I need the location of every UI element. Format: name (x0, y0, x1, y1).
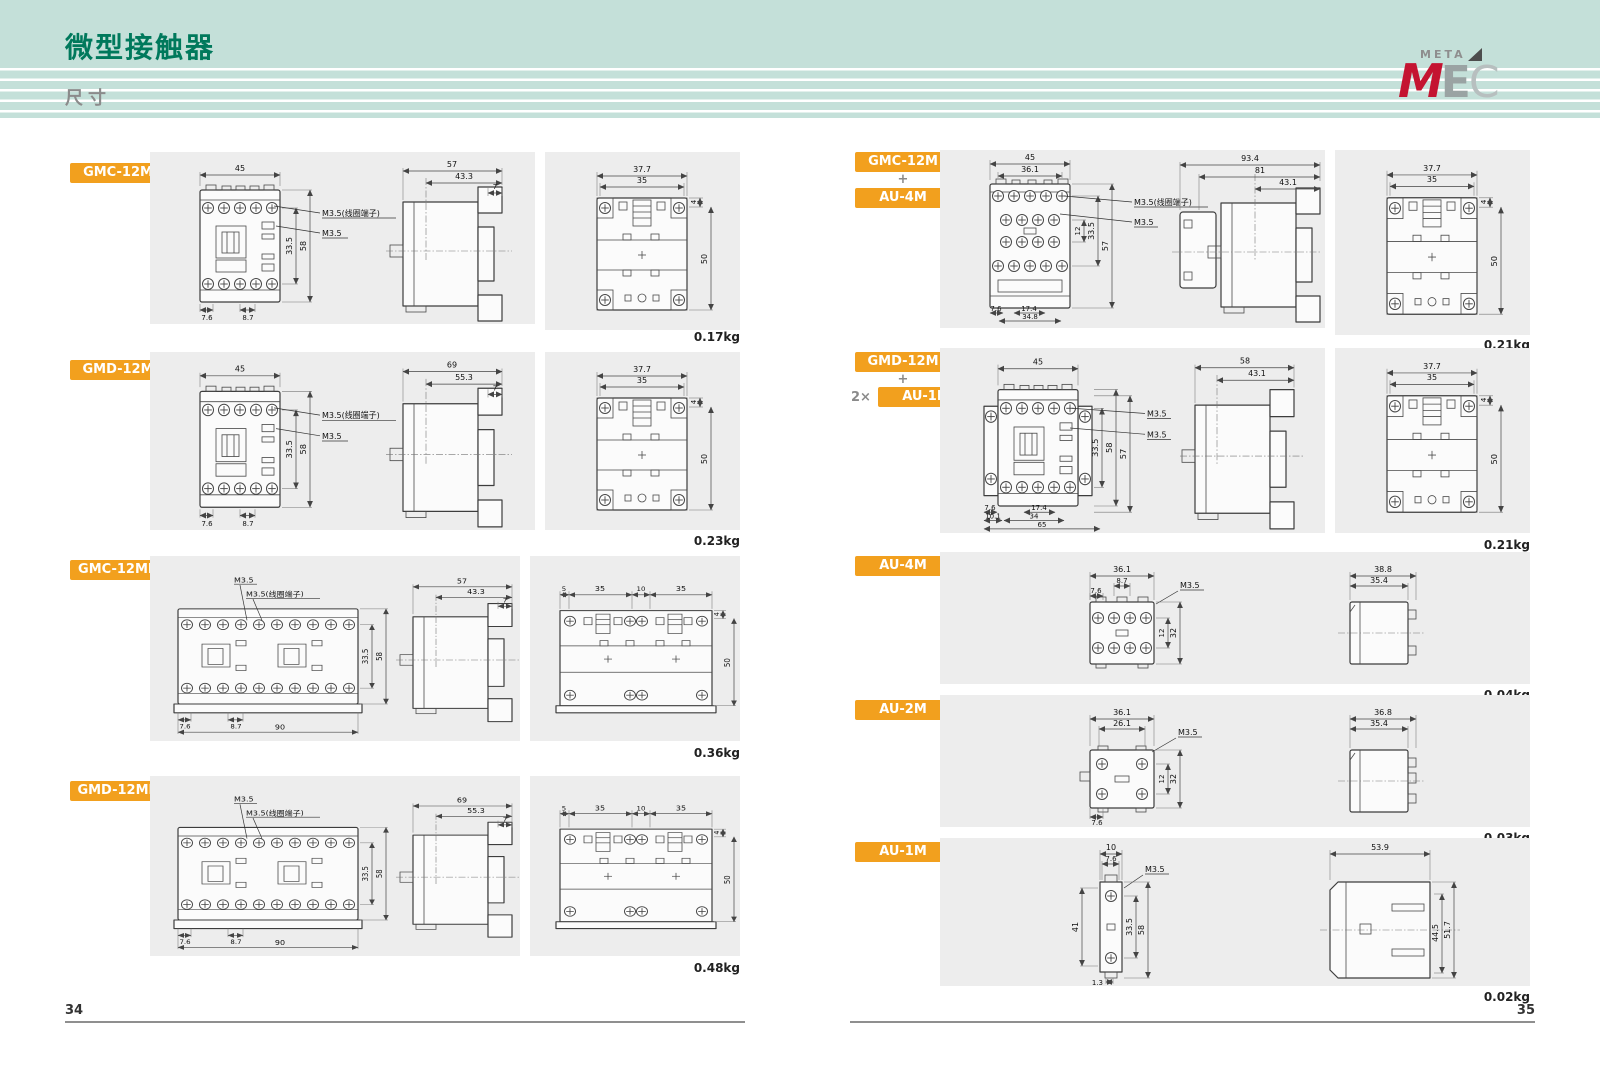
badge-gmc-12m: GMC-12M (855, 152, 951, 172)
front-view: 36.1 8.7 7.6 M3.5 12 32 (1090, 565, 1204, 668)
dim-label: 10 (637, 805, 646, 812)
dim-label: 41 (1071, 922, 1080, 932)
coil-terminal-label: M3.5(线圈端子) (1134, 197, 1192, 207)
page-number-left: 34 (65, 1003, 83, 1018)
metamec-logo: META MEC (1398, 48, 1538, 115)
dim-label: 58 (374, 869, 384, 878)
coil-terminal-label: M3.5(线圈端子) (322, 208, 380, 218)
front-view: M3.5 M3.5(线圈端子) 33.5 58 7.6 8.7 90 (174, 576, 388, 734)
side-view: 53.9 44.5 51.7 (1320, 843, 1460, 978)
terminal-label: M3.5 (234, 576, 254, 584)
side-view: 57 43.3 7 (396, 577, 520, 722)
header-stripes (0, 60, 1600, 118)
gmd-12mr-front-side-svg: M3.5 M3.5(线圈端子) 33.5 58 7.6 8.7 90 69 55… (150, 776, 520, 956)
front-view: 45 33.5 58 7.6 8.7 M3.5(线圈端子) M3.5 (200, 164, 396, 322)
footer-rule-left (65, 1021, 745, 1023)
front-view: 10 7.6 M3.5 41 33.5 58 1.3 (1071, 843, 1169, 986)
terminal-label: M3.5 (1134, 218, 1154, 227)
dim-label: 33.5 (1125, 918, 1134, 936)
dim-label: 8.7 (230, 938, 241, 945)
dim-label: 32 (1169, 774, 1178, 784)
dim-label: 36.1 (1113, 565, 1131, 574)
gmd-12m-front-side-svg: 45 33.5 58 7.6 8.7 M3.5(线圈端子) M3.5 69 55… (150, 352, 535, 530)
dim-label: 8.7 (242, 519, 253, 528)
badge-au-4m: AU-4M (855, 556, 951, 576)
dim-label: 50 (700, 254, 709, 264)
dim-label: 58 (1240, 355, 1250, 365)
gmc-12mr-bottom-svg: 5 35 10 35 4 50 (530, 556, 740, 741)
au-1m-svg: 10 7.6 M3.5 41 33.5 58 1.3 53.9 44.5 (940, 838, 1530, 986)
dim-label: 7.6 (1090, 587, 1102, 595)
gmc-12mr-bottom-drawing: 5 35 10 35 4 50 (530, 556, 740, 741)
dim-label: 33.5 (284, 440, 294, 458)
page-title: 微型接触器 (65, 26, 215, 66)
gmc-12m-front-side-svg: 45 33.5 58 7.6 8.7 M3.5(线圈端子) M3.5 57 43… (150, 152, 535, 324)
dim-label: 12 (1158, 629, 1166, 638)
bottom-view: 5 35 10 35 4 50 (556, 585, 736, 713)
dim-label: 57 (1101, 241, 1110, 251)
bottom-view: 5 35 10 35 4 50 (556, 804, 736, 929)
dim-label: 32 (1169, 628, 1178, 638)
dim-label: 7.6 (179, 938, 190, 945)
dim-label: 90 (275, 723, 285, 731)
dim-label: 58 (1104, 443, 1114, 454)
dim-label: 35 (1427, 174, 1437, 184)
dim-label: 65 (1038, 520, 1047, 529)
badge-au-4m: AU-4M (855, 188, 951, 208)
dim-label: 36.1 (1021, 165, 1039, 174)
dim-label: 7 (503, 597, 507, 604)
plus-sign: + (855, 172, 951, 187)
plus-sign: + (855, 372, 951, 387)
dim-label: 43.3 (455, 172, 473, 181)
dim-label: 50 (722, 875, 732, 884)
front-view: M3.5 M3.5(线圈端子) 33.5 58 7.6 8.7 90 (174, 795, 388, 949)
dim-label: 50 (1489, 256, 1499, 267)
gmd-12mr-bottom-svg: 5 35 10 35 4 50 (530, 776, 740, 956)
gmc-12mr-front-side-svg: M3.5 M3.5(线圈端子) 33.5 58 7.6 8.7 90 57 43… (150, 556, 520, 741)
gmd-12mr-bottom-drawing: 5 35 10 35 4 50 (530, 776, 740, 956)
dim-label: 35.4 (1370, 719, 1388, 728)
dim-label: 1.3 (1092, 979, 1103, 986)
side-view: 38.8 35.4 (1338, 565, 1424, 664)
gmd-12m-au1m-front-side-drawing: 45 33.5 58 57 M3.5 M3.5 7.6 17.4 10.1 34… (940, 348, 1325, 533)
dim-label: 5 (562, 805, 566, 812)
terminal-label: M3.5 (322, 431, 342, 441)
dim-label: 58 (1137, 925, 1146, 935)
dim-label: 33.5 (361, 648, 371, 664)
dim-label: 53.9 (1371, 843, 1389, 852)
dim-label: 69 (457, 796, 467, 804)
dim-label: 50 (1489, 454, 1499, 465)
dim-label: 36.1 (1113, 708, 1131, 717)
gmd-12m-bottom-drawing: 37.7 35 4 50 (545, 352, 740, 530)
dim-label: 10 (637, 586, 646, 593)
weight-label: 0.36kg (540, 746, 740, 760)
dim-label: 37.7 (633, 365, 651, 374)
dim-label: 26.1 (1113, 719, 1131, 728)
weight-label: 0.23kg (540, 534, 740, 548)
logo-c: C (1469, 57, 1500, 108)
gmd-12m-au1m-bottom-svg: 37.7 35 4 50 (1335, 348, 1530, 533)
gmd-12m-au1m-bottom-drawing: 37.7 35 4 50 (1335, 348, 1530, 533)
badge-gmd-12m: GMD-12M (855, 352, 951, 372)
dim-label: 38.8 (1374, 565, 1392, 574)
terminal-label: M3.5 (1147, 429, 1167, 439)
gmd-12m-bottom-svg: 37.7 35 4 50 (545, 352, 740, 530)
dim-label: 4 (713, 831, 722, 835)
dim-label: 45 (235, 164, 245, 173)
dim-label: 93.4 (1241, 154, 1259, 163)
dim-label: 51.7 (1443, 921, 1452, 939)
badge-au-2m: AU-2M (855, 700, 951, 720)
dim-label: 12 (1074, 227, 1082, 236)
gmd-12m-au1m-front-side-svg: 45 33.5 58 57 M3.5 M3.5 7.6 17.4 10.1 34… (940, 348, 1325, 533)
au-4m-drawing: 36.1 8.7 7.6 M3.5 12 32 38.8 35.4 (940, 552, 1530, 684)
dim-label: 50 (700, 454, 709, 464)
au-4m-svg: 36.1 8.7 7.6 M3.5 12 32 38.8 35.4 (940, 552, 1530, 684)
dim-label: 57 (457, 577, 467, 585)
dim-label: 7 (493, 383, 497, 392)
dim-label: 7.6 (179, 723, 190, 730)
coil-terminal-label: M3.5(线圈端子) (246, 589, 304, 598)
au-1m-drawing: 10 7.6 M3.5 41 33.5 58 1.3 53.9 44.5 (940, 838, 1530, 986)
dim-label: 7 (493, 183, 497, 191)
dim-label: 35 (676, 585, 686, 593)
dim-label: 12 (1158, 775, 1166, 784)
gmd-12mr-front-side-drawing: M3.5 M3.5(线圈端子) 33.5 58 7.6 8.7 90 69 55… (150, 776, 520, 956)
dim-label: 7.6 (990, 305, 1002, 313)
dim-label: 35 (1427, 372, 1437, 382)
dim-label: 4 (690, 399, 698, 404)
dim-label: 43.1 (1279, 178, 1297, 187)
dim-label: 7.6 (201, 314, 213, 322)
bottom-view: 37.7 35 4 50 (1387, 163, 1503, 315)
side-view: 69 55.3 7 (386, 359, 512, 527)
terminal-label: M3.5 (1178, 728, 1198, 737)
dim-label: 35 (637, 176, 647, 185)
front-view: 45 36.1 12 33.5 57 M3.5(线圈端子) M3.5 7.6 1… (990, 153, 1208, 321)
page-subtitle: 尺寸 (65, 84, 111, 110)
weight-label: 0.17kg (540, 330, 740, 344)
terminal-label: M3.5 (234, 795, 254, 803)
dim-label: 50 (723, 658, 733, 667)
footer-rule-right (850, 1021, 1535, 1023)
dim-label: 35 (637, 376, 647, 385)
gmd-12m-front-side-drawing: 45 33.5 58 7.6 8.7 M3.5(线圈端子) M3.5 69 55… (150, 352, 535, 530)
dim-label: 7.6 (201, 519, 213, 528)
dim-label: 81 (1255, 166, 1265, 175)
gmc-12m-front-side-drawing: 45 33.5 58 7.6 8.7 M3.5(线圈端子) M3.5 57 43… (150, 152, 535, 324)
dim-label: 58 (298, 444, 308, 455)
dim-label: 7.6 (1105, 855, 1117, 863)
bottom-view: 37.7 35 4 50 (597, 365, 713, 510)
weight-label: 0.02kg (1330, 990, 1530, 1004)
catalog-page: 微型接触器 尺寸 META MEC GMC-12M 45 33.5 58 7.6… (0, 0, 1600, 1085)
dim-label: 35 (595, 804, 605, 812)
gmc-12m-au4m-front-side-svg: 45 36.1 12 33.5 57 M3.5(线圈端子) M3.5 7.6 1… (940, 150, 1325, 328)
dim-label: 33.5 (1087, 222, 1096, 240)
dim-label: 44.5 (1431, 924, 1440, 942)
terminal-label: M3.5 (1147, 408, 1167, 418)
dim-label: 4 (1479, 397, 1488, 402)
dim-label: 34.8 (1022, 313, 1038, 321)
dim-label: 5 (562, 586, 566, 593)
dim-label: 69 (447, 359, 457, 369)
front-view: 45 33.5 58 7.6 8.7 M3.5(线圈端子) M3.5 (200, 364, 396, 528)
dim-label: 57 (447, 160, 457, 169)
dim-label: 35 (595, 585, 605, 593)
dim-label: 58 (299, 241, 308, 251)
dim-label: 45 (1033, 356, 1043, 366)
dim-label: 36.8 (1374, 708, 1392, 717)
dim-label: 37.7 (1423, 163, 1441, 173)
bottom-view: 37.7 35 4 50 (597, 165, 713, 310)
gmc-12m-au4m-bottom-drawing: 37.7 35 4 50 (1335, 150, 1530, 335)
dim-label: 57 (1118, 449, 1128, 460)
coil-terminal-label: M3.5(线圈端子) (322, 410, 380, 420)
side-view: 57 43.3 7 (386, 160, 512, 321)
au-2m-svg: 36.1 26.1 M3.5 12 32 7.6 36.8 35.4 (940, 695, 1530, 827)
dim-label: 10.1 (985, 511, 1001, 520)
terminal-label: M3.5 (1180, 581, 1200, 590)
gmc-12m-bottom-svg: 37.7 35 4 50 (545, 152, 740, 330)
terminal-label: M3.5 (1145, 865, 1165, 874)
bottom-view: 37.7 35 4 50 (1387, 361, 1503, 513)
terminal-label: M3.5 (322, 229, 342, 238)
dim-label: 37.7 (1423, 361, 1441, 371)
side-view: 36.8 35.4 (1338, 708, 1424, 812)
dim-label: 55.3 (467, 806, 485, 814)
dim-label: 43.1 (1248, 368, 1266, 378)
front-view: 36.1 26.1 M3.5 12 32 7.6 (1080, 708, 1202, 827)
header-band: 微型接触器 尺寸 META MEC (0, 0, 1600, 118)
logo-m: M (1398, 54, 1441, 108)
gmc-12m-au4m-front-side-drawing: 45 36.1 12 33.5 57 M3.5(线圈端子) M3.5 7.6 1… (940, 150, 1325, 328)
front-view: 45 33.5 58 57 M3.5 M3.5 7.6 17.4 10.1 34… (984, 356, 1171, 528)
dim-label: 55.3 (455, 372, 473, 382)
dim-label: 45 (235, 364, 245, 374)
dim-label: 45 (1025, 153, 1035, 162)
dim-label: 10 (1106, 843, 1116, 852)
dim-label: 7.6 (1091, 819, 1103, 827)
weight-label: 0.48kg (540, 961, 740, 975)
dim-label: 7 (503, 816, 507, 823)
dim-label: 43.3 (467, 587, 485, 595)
page-number-right: 35 (1335, 1003, 1535, 1018)
dim-label: 33.5 (360, 866, 370, 881)
dim-label: 4 (713, 612, 721, 616)
coil-terminal-label: M3.5(线圈端子) (246, 808, 304, 817)
dim-label: 35.4 (1370, 576, 1388, 585)
side-view: 93.4 81 43.1 (1172, 154, 1322, 322)
gmc-12m-au4m-bottom-svg: 37.7 35 4 50 (1335, 150, 1530, 335)
dim-label: 4 (690, 199, 698, 204)
dim-label: 33.5 (1090, 439, 1100, 457)
dim-label: 4 (1479, 199, 1488, 204)
dim-label: 8.7 (230, 723, 241, 730)
weight-label: 0.21kg (1330, 538, 1530, 552)
dim-label: 35 (676, 804, 686, 812)
gmc-12m-bottom-drawing: 37.7 35 4 50 (545, 152, 740, 330)
dim-label: 8.7 (1116, 577, 1127, 585)
logo-e: E (1441, 57, 1469, 108)
dim-label: 90 (275, 938, 285, 946)
au-2m-drawing: 36.1 26.1 M3.5 12 32 7.6 36.8 35.4 (940, 695, 1530, 827)
dim-label: 37.7 (633, 165, 651, 174)
dim-label: 17.4 (1021, 305, 1037, 313)
dim-label: 33.5 (285, 237, 294, 255)
side-view: 58 43.1 (1180, 355, 1304, 528)
dim-label: 8.7 (242, 314, 253, 322)
side-view: 69 55.3 7 (396, 796, 520, 937)
gmc-12mr-front-side-drawing: M3.5 M3.5(线圈端子) 33.5 58 7.6 8.7 90 57 43… (150, 556, 520, 741)
dim-label: 58 (375, 652, 385, 661)
multiplier-label: 2× (851, 390, 871, 405)
badge-au-1m: AU-1M (855, 842, 951, 862)
